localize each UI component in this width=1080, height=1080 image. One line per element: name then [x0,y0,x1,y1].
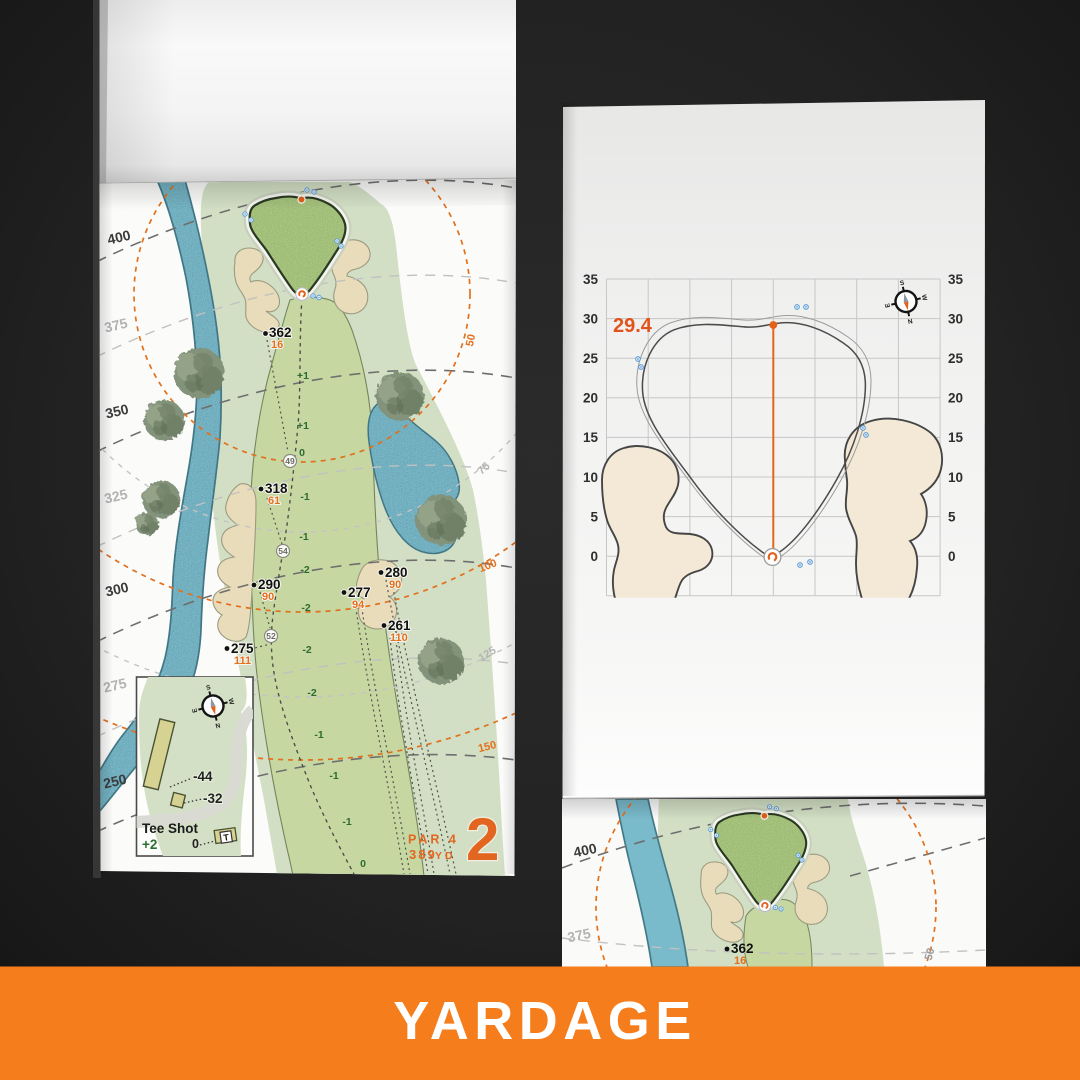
svg-text:5: 5 [948,509,956,524]
svg-text:10: 10 [948,470,963,485]
svg-text:362: 362 [269,325,292,340]
svg-text:90: 90 [262,591,274,603]
svg-text:+1: +1 [297,420,309,432]
svg-text:0: 0 [948,549,956,564]
svg-text:277: 277 [348,585,371,600]
svg-text:54: 54 [278,546,288,556]
svg-text:49: 49 [285,456,295,466]
svg-text:16: 16 [734,955,746,967]
svg-text:-2: -2 [301,602,310,614]
svg-text:YARDAGE: YARDAGE [393,991,697,1051]
svg-text:29.4: 29.4 [613,315,653,337]
svg-text:52: 52 [266,631,276,641]
svg-text:16: 16 [271,339,283,351]
svg-text:-2: -2 [302,644,311,656]
svg-text:+2: +2 [142,837,157,852]
svg-text:+1: +1 [297,370,309,382]
svg-text:30: 30 [583,311,598,326]
svg-text:280: 280 [385,565,408,580]
svg-text:35: 35 [948,272,964,287]
svg-text:261: 261 [388,618,411,633]
svg-text:-1: -1 [342,816,351,828]
svg-text:-2: -2 [307,687,316,699]
svg-text:PAR 4: PAR 4 [408,833,459,847]
svg-text:0: 0 [192,837,199,851]
svg-text:-1: -1 [329,770,338,782]
svg-text:20: 20 [948,391,963,406]
svg-text:90: 90 [389,579,401,591]
svg-text:-2: -2 [300,564,309,576]
svg-text:50: 50 [464,333,478,347]
svg-text:290: 290 [258,577,281,592]
svg-text:61: 61 [268,495,280,507]
svg-text:Tee Shot: Tee Shot [142,821,199,836]
svg-text:10: 10 [583,470,598,485]
svg-text:20: 20 [583,391,598,406]
svg-text:-1: -1 [300,491,309,503]
svg-text:111: 111 [234,655,251,667]
svg-text:389: 389 [409,847,437,862]
svg-text:5: 5 [590,509,598,524]
svg-text:362: 362 [731,941,754,956]
svg-text:30: 30 [948,311,963,326]
svg-text:YD: YD [435,850,456,862]
svg-text:-44: -44 [193,769,213,784]
svg-text:25: 25 [583,351,599,366]
svg-text:25: 25 [948,351,964,366]
svg-text:0: 0 [360,858,366,870]
svg-text:-32: -32 [203,791,223,806]
svg-text:-1: -1 [299,531,308,543]
svg-text:275: 275 [231,641,254,656]
svg-text:0: 0 [590,549,598,564]
svg-text:94: 94 [352,599,365,611]
svg-text:15: 15 [583,430,599,445]
svg-text:15: 15 [948,430,964,445]
svg-text:35: 35 [583,272,599,287]
svg-text:-1: -1 [314,729,323,741]
svg-text:110: 110 [390,632,408,644]
svg-text:2: 2 [466,806,499,873]
svg-text:0: 0 [299,447,305,459]
svg-text:318: 318 [265,481,288,496]
